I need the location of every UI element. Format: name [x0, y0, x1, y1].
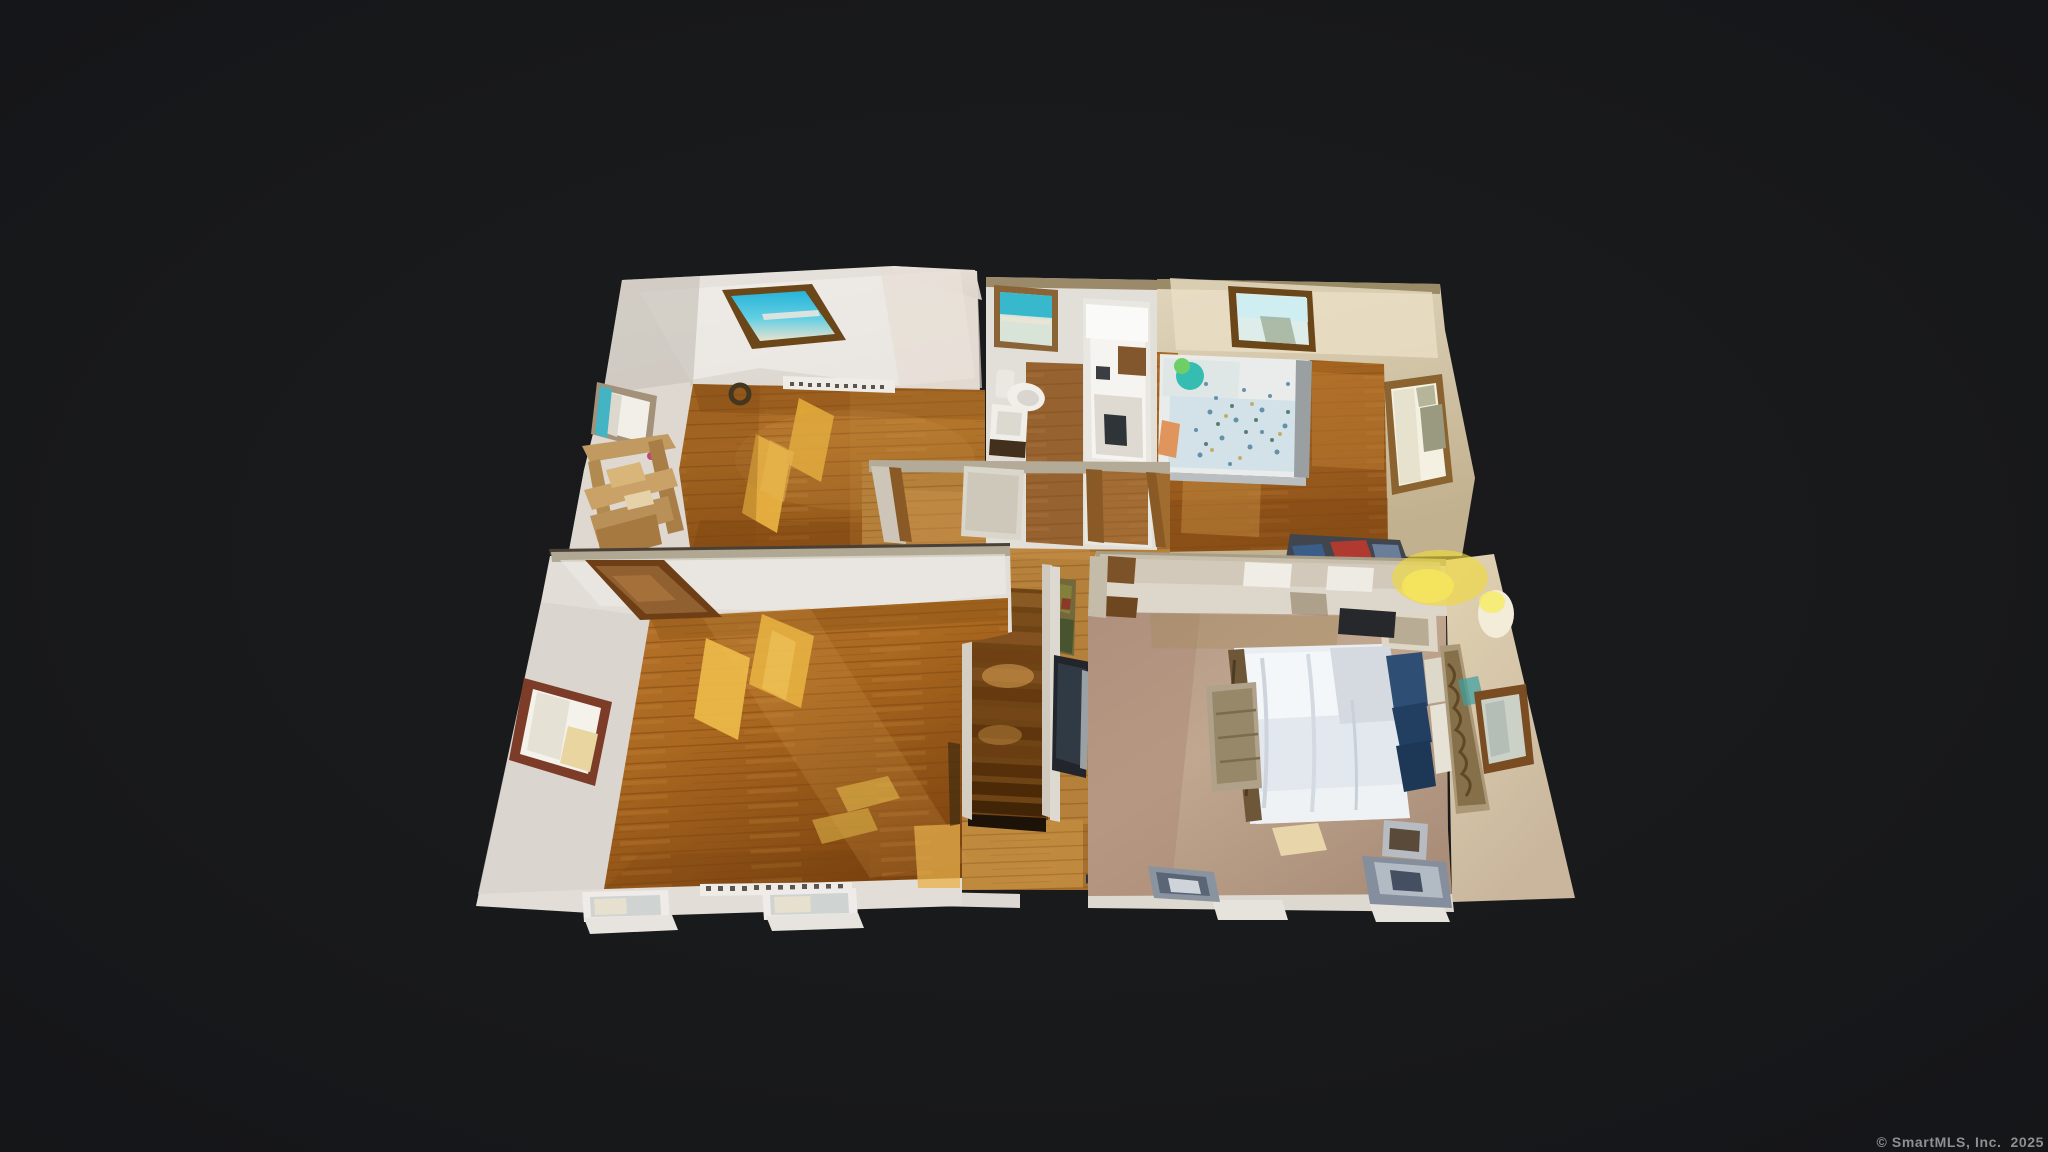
- svg-text:© SmartMLS, Inc. 2025: © SmartMLS, Inc. 2025: [1877, 1134, 2044, 1150]
